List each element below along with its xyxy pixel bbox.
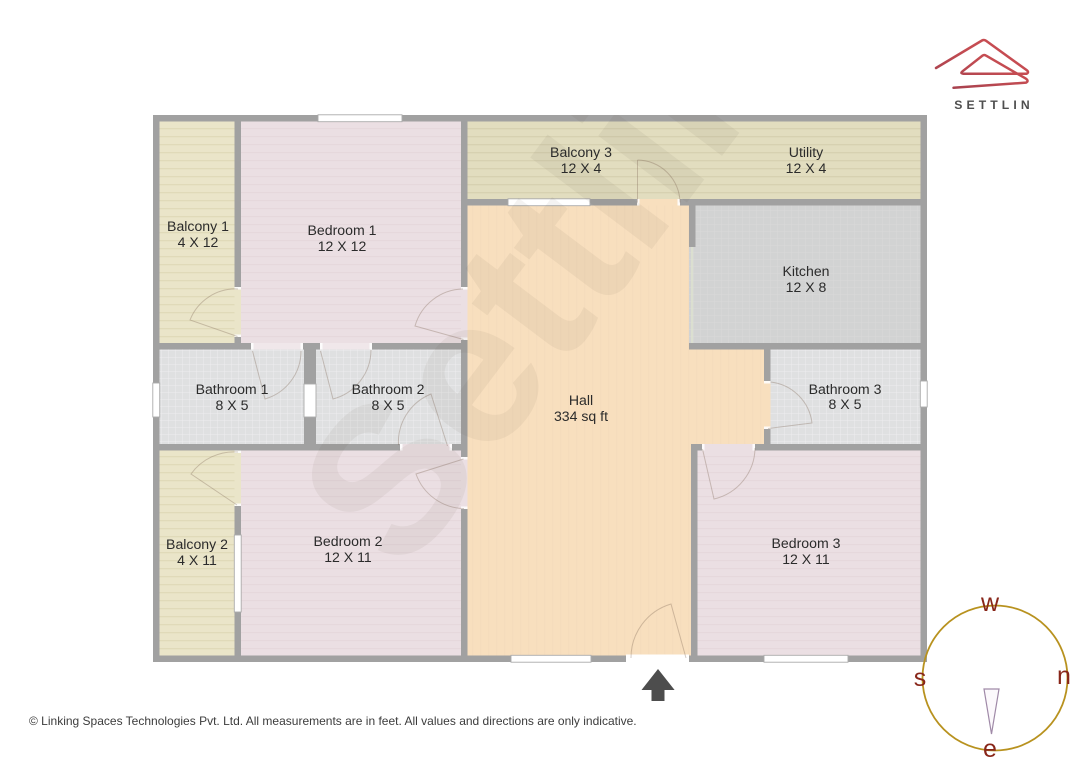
svg-text:e: e xyxy=(983,735,997,763)
svg-text:4 X 12: 4 X 12 xyxy=(178,234,219,250)
svg-text:8 X 5: 8 X 5 xyxy=(372,397,405,413)
svg-text:12 X 8: 12 X 8 xyxy=(786,279,827,295)
svg-text:12 X 4: 12 X 4 xyxy=(561,160,602,176)
svg-text:12 X 4: 12 X 4 xyxy=(786,160,827,176)
svg-text:Utility: Utility xyxy=(789,144,824,160)
svg-text:Bedroom 2: Bedroom 2 xyxy=(314,533,383,549)
svg-text:12 X 12: 12 X 12 xyxy=(318,238,367,254)
svg-text:Bathroom 3: Bathroom 3 xyxy=(809,381,882,397)
svg-text:Bedroom 1: Bedroom 1 xyxy=(308,222,377,238)
svg-text:4 X 11: 4 X 11 xyxy=(177,552,217,568)
svg-text:Bathroom 2: Bathroom 2 xyxy=(352,381,425,397)
svg-text:12 X 11: 12 X 11 xyxy=(324,549,372,565)
svg-text:334 sq ft: 334 sq ft xyxy=(554,408,608,424)
svg-text:12 X 11: 12 X 11 xyxy=(782,551,830,567)
svg-text:Bathroom 1: Bathroom 1 xyxy=(196,381,269,397)
svg-text:w: w xyxy=(980,589,1000,617)
svg-text:SETTLIN: SETTLIN xyxy=(954,98,1033,112)
svg-text:n: n xyxy=(1057,662,1071,690)
svg-text:8 X 5: 8 X 5 xyxy=(829,396,862,412)
svg-text:© Linking Spaces Technologies: © Linking Spaces Technologies Pvt. Ltd. … xyxy=(29,714,637,728)
svg-text:Balcony 2: Balcony 2 xyxy=(166,536,228,552)
svg-text:Bedroom 3: Bedroom 3 xyxy=(772,535,841,551)
svg-text:Balcony 3: Balcony 3 xyxy=(550,144,612,160)
svg-text:Kitchen: Kitchen xyxy=(782,263,829,279)
svg-text:s: s xyxy=(914,664,927,692)
svg-text:8 X 5: 8 X 5 xyxy=(216,397,249,413)
svg-text:Hall: Hall xyxy=(569,392,593,408)
svg-text:Balcony 1: Balcony 1 xyxy=(167,218,229,234)
